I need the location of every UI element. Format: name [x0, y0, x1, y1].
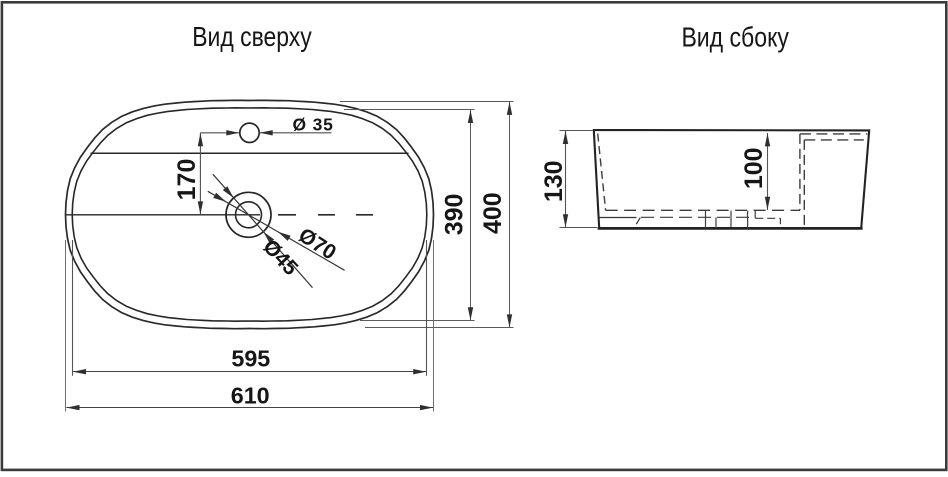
- svg-text:100: 100: [740, 147, 768, 189]
- svg-text:400: 400: [479, 192, 507, 234]
- svg-text:390: 390: [441, 194, 469, 236]
- svg-text:130: 130: [540, 160, 568, 202]
- svg-text:Ø 35: Ø 35: [293, 114, 334, 134]
- svg-text:610: 610: [231, 383, 270, 409]
- svg-text:170: 170: [173, 159, 201, 201]
- svg-text:595: 595: [231, 346, 270, 372]
- svg-text:Вид сбоку: Вид сбоку: [681, 22, 789, 53]
- svg-text:Вид сверху: Вид сверху: [192, 21, 312, 52]
